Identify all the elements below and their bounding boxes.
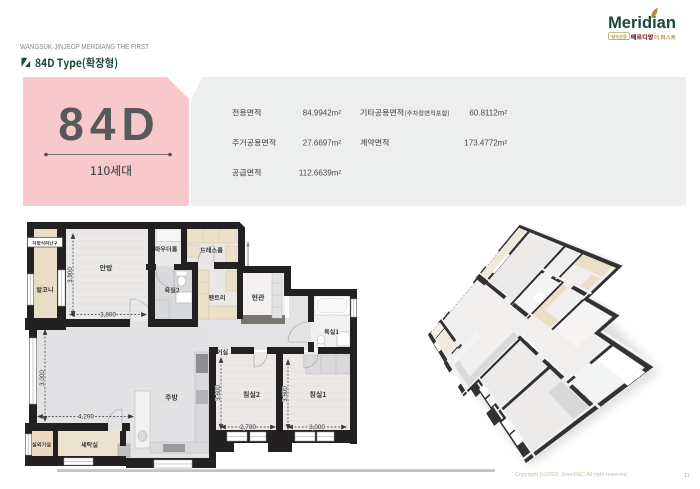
svg-text:3,600: 3,600 <box>215 385 222 401</box>
svg-text:3,900: 3,900 <box>67 267 74 283</box>
svg-text:4,200: 4,200 <box>78 414 94 421</box>
svg-text:Meridian: Meridian <box>608 14 676 32</box>
svg-text:173.4772m²: 173.4772m² <box>464 139 507 148</box>
svg-text:3,600: 3,600 <box>282 386 289 402</box>
svg-text:11: 11 <box>684 473 690 479</box>
svg-text:2,700: 2,700 <box>240 424 256 431</box>
svg-text:27.6697m²: 27.6697m² <box>303 139 342 148</box>
svg-text:60.8112m²: 60.8112m² <box>469 109 507 118</box>
svg-text:3,000: 3,000 <box>309 424 325 431</box>
svg-text:84.9942m²: 84.9942m² <box>303 109 342 118</box>
svg-text:3,800: 3,800 <box>100 312 116 319</box>
svg-text:3,000: 3,000 <box>39 370 46 386</box>
svg-text:112.6639m²: 112.6639m² <box>299 169 341 178</box>
svg-text:WANGSUK·JINJEOP MERDIANG THE F: WANGSUK·JINJEOP MERDIANG THE FIRST <box>20 42 149 51</box>
svg-text:84D: 84D <box>58 98 160 150</box>
svg-text:Copyright (c)2023, JinooD&C Al: Copyright (c)2023, JinooD&C All right re… <box>515 472 627 478</box>
